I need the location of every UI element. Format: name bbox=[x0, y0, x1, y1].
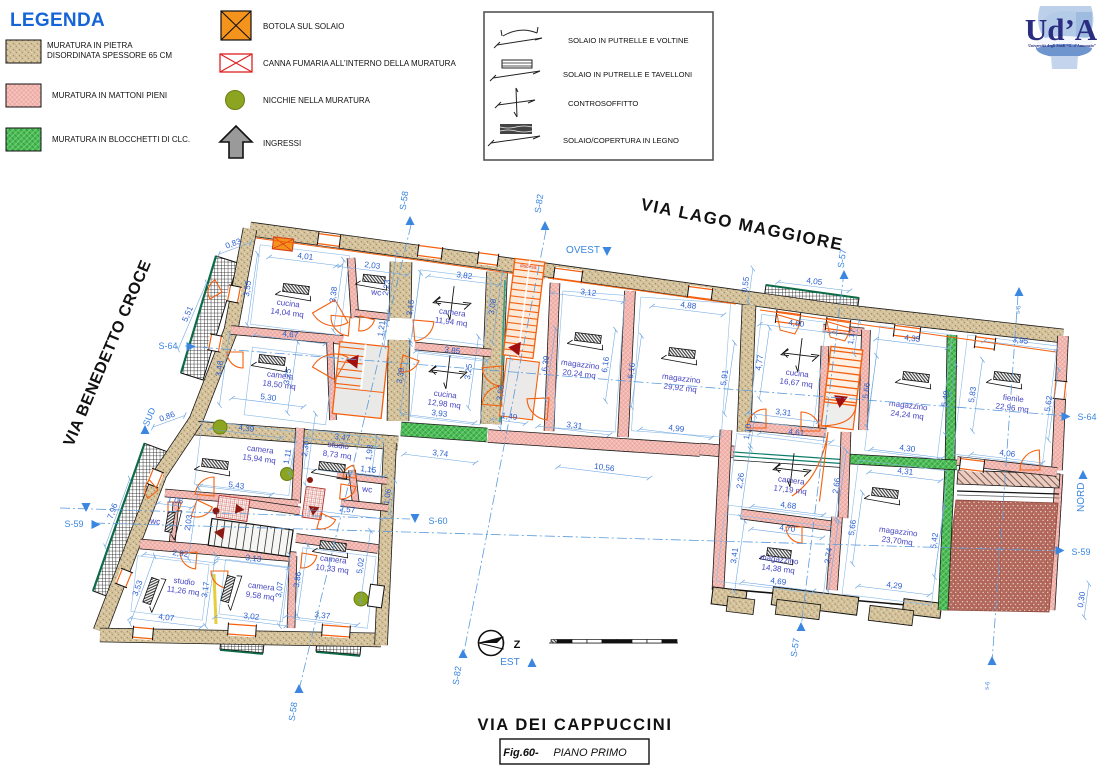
svg-text:wc: wc bbox=[370, 286, 382, 297]
svg-text:OVEST: OVEST bbox=[566, 245, 600, 256]
svg-text:NORD: NORD bbox=[1076, 483, 1087, 512]
svg-text:s-6: s-6 bbox=[984, 681, 991, 691]
svg-text:SOLAIO IN PUTRELLE E TAVELLONI: SOLAIO IN PUTRELLE E TAVELLONI bbox=[563, 70, 692, 79]
svg-text:VIA DEI CAPPUCCINI: VIA DEI CAPPUCCINI bbox=[477, 716, 672, 734]
svg-text:PIANO PRIMO: PIANO PRIMO bbox=[553, 747, 627, 759]
svg-text:S-59: S-59 bbox=[64, 519, 83, 529]
svg-text:s-6: s-6 bbox=[1015, 305, 1022, 315]
svg-text:BOTOLA SUL SOLAIO: BOTOLA SUL SOLAIO bbox=[263, 22, 344, 31]
svg-text:SOLAIO/COPERTURA IN LEGNO: SOLAIO/COPERTURA IN LEGNO bbox=[563, 136, 679, 145]
svg-text:MURATURA IN PIETRA: MURATURA IN PIETRA bbox=[47, 41, 133, 50]
svg-text:Fig.60-: Fig.60- bbox=[503, 747, 539, 759]
svg-text:MURATURA IN MATTONI PIENI: MURATURA IN MATTONI PIENI bbox=[52, 91, 167, 100]
svg-text:Z: Z bbox=[514, 639, 521, 651]
svg-text:S-60: S-60 bbox=[428, 516, 447, 526]
svg-text:CANNA FUMARIA ALL’INTERNO DELL: CANNA FUMARIA ALL’INTERNO DELLA MURATURA bbox=[263, 59, 456, 68]
svg-text:Università degli Studi “G. d’A: Università degli Studi “G. d’Annunzio” bbox=[1028, 43, 1095, 48]
svg-text:CONTROSOFFITTO: CONTROSOFFITTO bbox=[568, 99, 638, 108]
svg-text:wc: wc bbox=[361, 483, 373, 494]
svg-text:S-64: S-64 bbox=[158, 341, 177, 351]
svg-text:LEGENDA: LEGENDA bbox=[10, 10, 105, 31]
svg-text:NICCHIE NELLA MURATURA: NICCHIE NELLA MURATURA bbox=[263, 96, 371, 105]
svg-text:Ud’A: Ud’A bbox=[1025, 12, 1098, 47]
svg-text:DISORDINATA SPESSORE 65 CM: DISORDINATA SPESSORE 65 CM bbox=[47, 51, 172, 60]
svg-text:SOLAIO IN PUTRELLE E VOLTINE: SOLAIO IN PUTRELLE E VOLTINE bbox=[568, 36, 689, 45]
svg-text:MURATURA IN BLOCCHETTI DI CLC.: MURATURA IN BLOCCHETTI DI CLC. bbox=[52, 135, 190, 144]
svg-text:S-64: S-64 bbox=[1077, 412, 1096, 422]
svg-text:S-59: S-59 bbox=[1071, 547, 1090, 557]
svg-text:INGRESSI: INGRESSI bbox=[263, 139, 301, 148]
svg-text:EST: EST bbox=[500, 657, 519, 668]
